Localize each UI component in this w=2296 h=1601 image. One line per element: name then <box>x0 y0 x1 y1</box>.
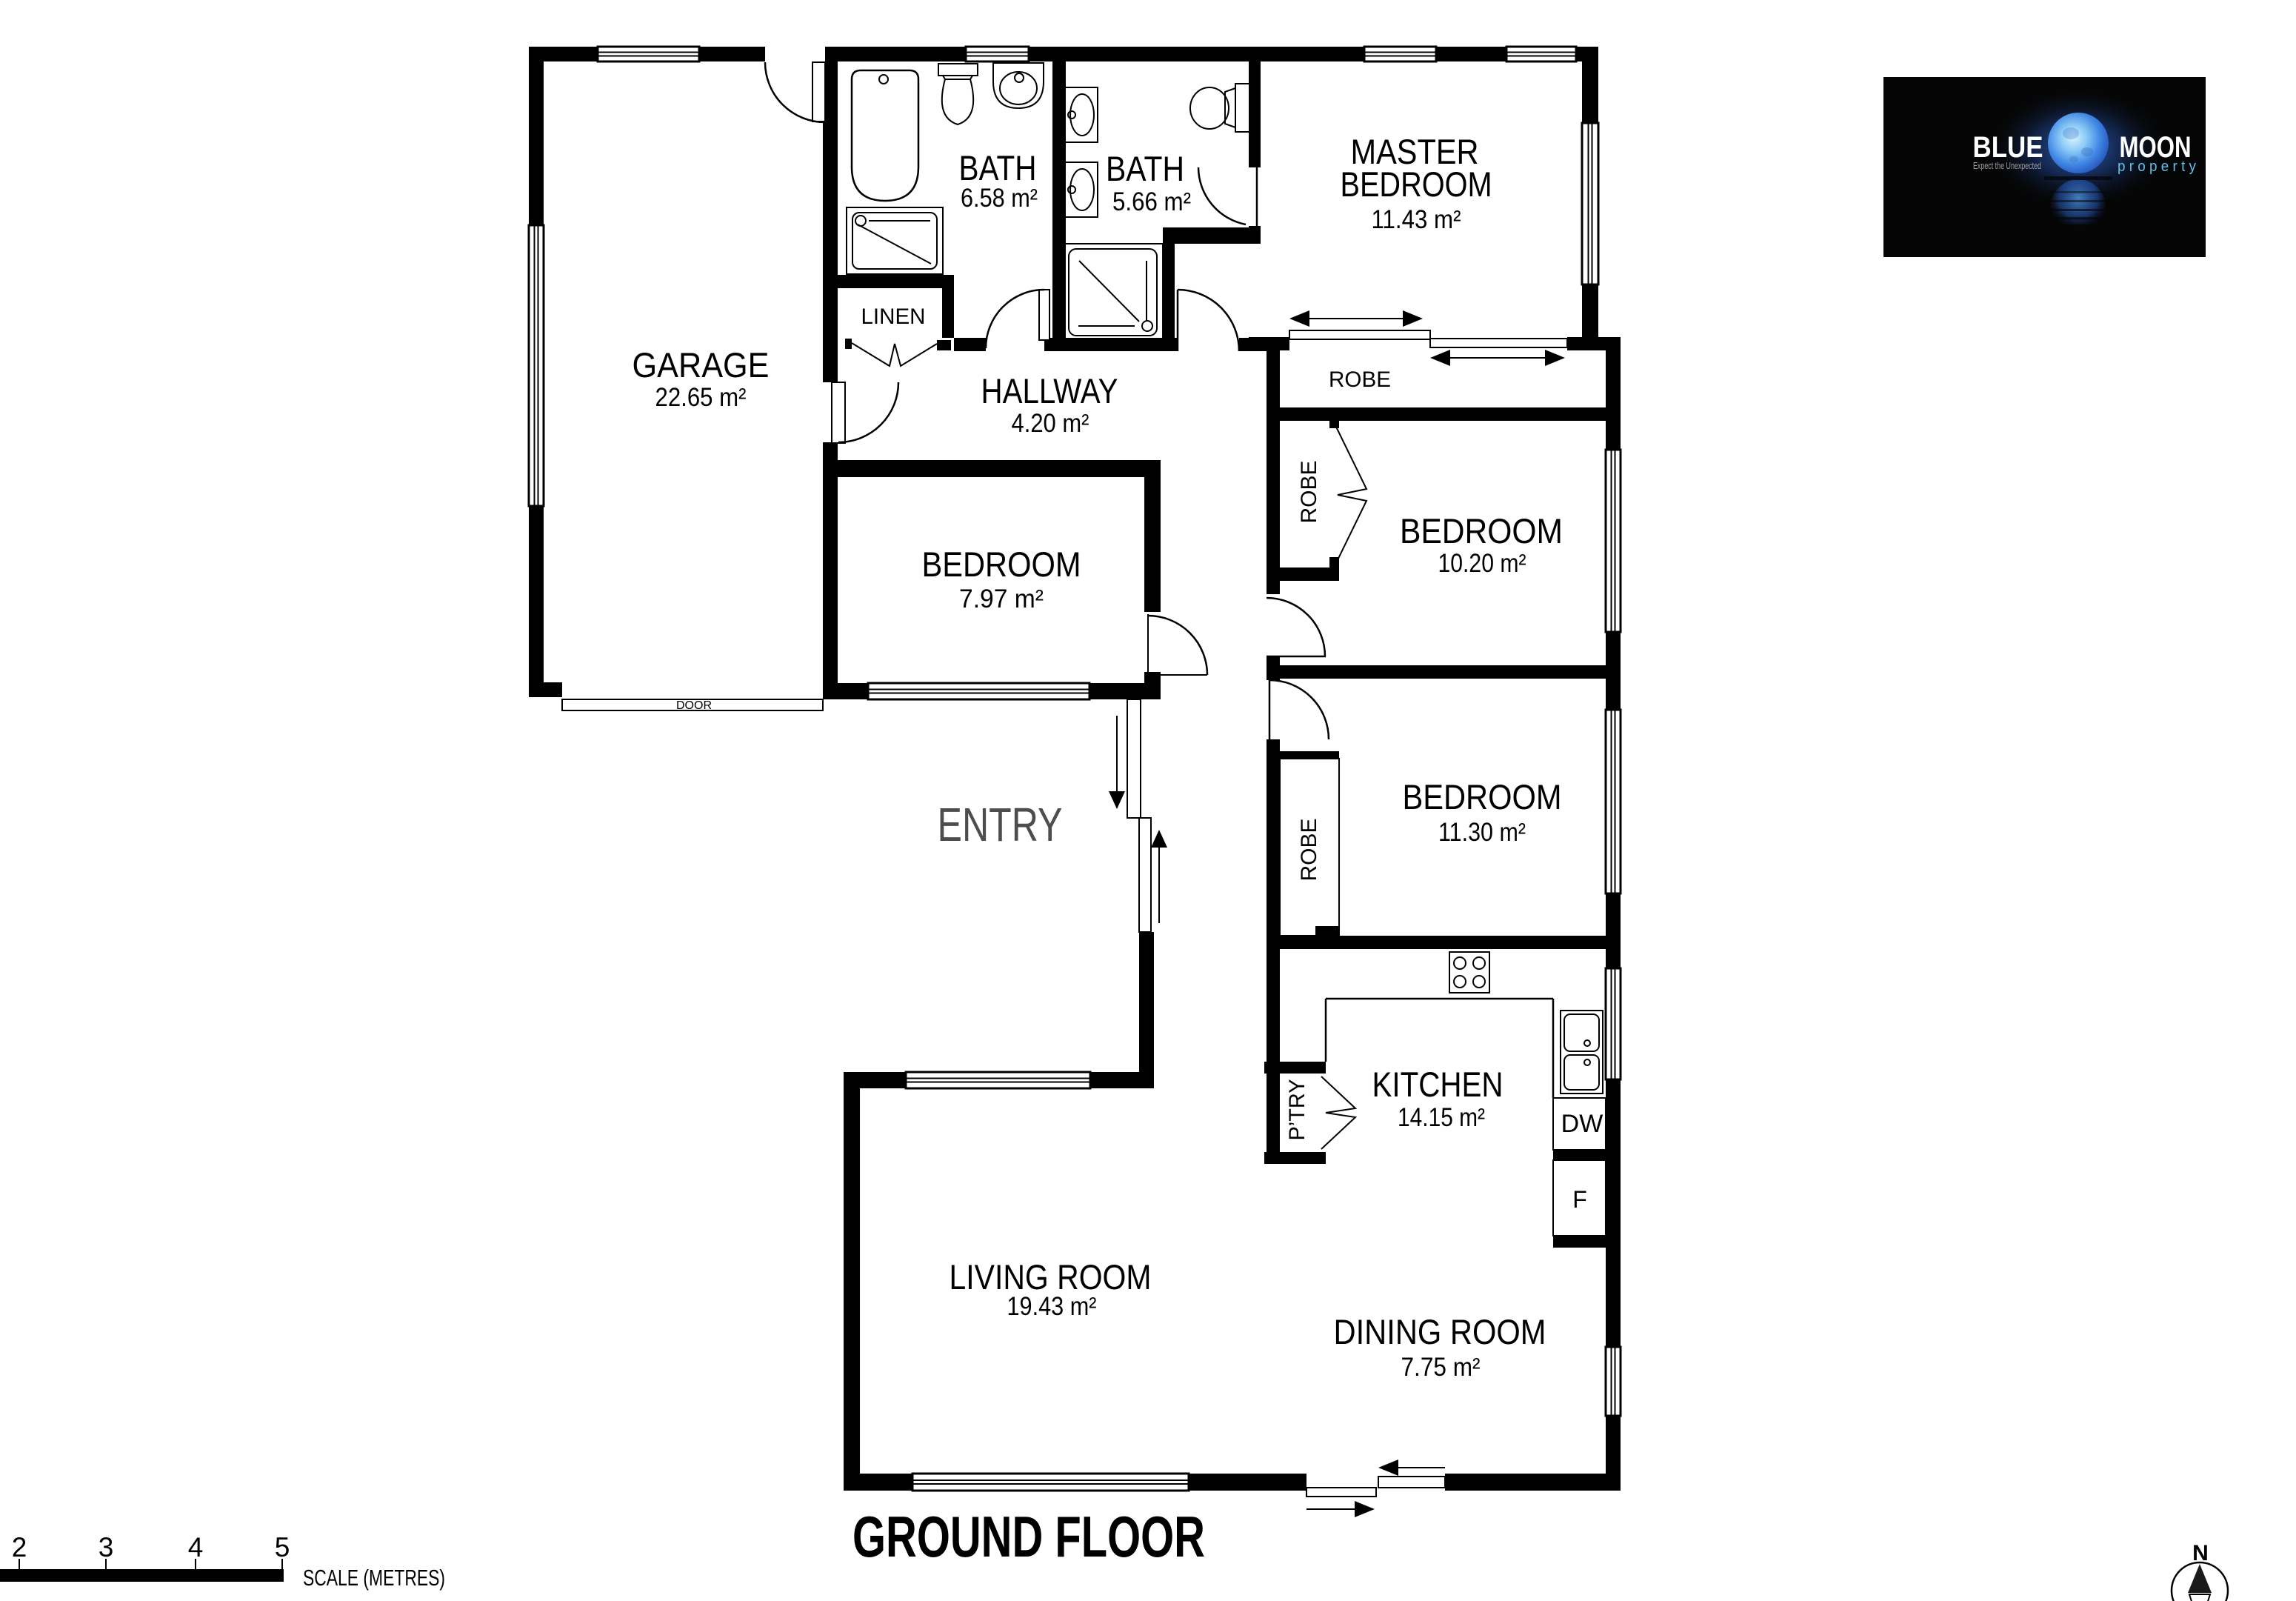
svg-text:7.97 m²: 7.97 m² <box>959 585 1044 613</box>
svg-text:GARAGE: GARAGE <box>633 345 770 385</box>
svg-text:10.20 m²: 10.20 m² <box>1438 549 1526 578</box>
svg-text:DINING ROOM: DINING ROOM <box>1334 1312 1546 1351</box>
svg-text:BEDROOM: BEDROOM <box>922 545 1081 584</box>
svg-text:GROUND FLOOR: GROUND FLOOR <box>852 1504 1205 1569</box>
svg-text:LINEN: LINEN <box>861 304 926 329</box>
svg-text:ROBE: ROBE <box>1329 367 1391 392</box>
svg-text:DOOR: DOOR <box>676 699 712 712</box>
svg-text:BATH: BATH <box>959 148 1037 187</box>
svg-text:DW: DW <box>1561 1110 1603 1138</box>
svg-text:4: 4 <box>188 1532 204 1562</box>
svg-text:ENTRY: ENTRY <box>938 798 1063 851</box>
svg-text:BEDROOM: BEDROOM <box>1341 164 1492 204</box>
svg-text:BEDROOM: BEDROOM <box>1403 777 1562 816</box>
svg-text:5.66 m²: 5.66 m² <box>1112 187 1191 216</box>
svg-text:2: 2 <box>12 1532 27 1562</box>
svg-text:3: 3 <box>99 1532 114 1562</box>
svg-text:14.15 m²: 14.15 m² <box>1398 1103 1485 1132</box>
svg-text:BLUE: BLUE <box>1973 131 2043 164</box>
svg-text:HALLWAY: HALLWAY <box>981 371 1118 410</box>
svg-text:5: 5 <box>275 1532 290 1562</box>
svg-text:BATH: BATH <box>1106 149 1184 188</box>
svg-text:p r o p e r t y: p r o p e r t y <box>2118 159 2196 175</box>
svg-text:ROBE: ROBE <box>1297 819 1321 882</box>
svg-text:7.75 m²: 7.75 m² <box>1401 1353 1481 1382</box>
svg-text:11.30 m²: 11.30 m² <box>1438 818 1526 847</box>
svg-text:22.65 m²: 22.65 m² <box>655 383 747 412</box>
svg-text:F: F <box>1572 1186 1587 1213</box>
svg-text:19.43 m²: 19.43 m² <box>1007 1292 1097 1321</box>
svg-text:11.43 m²: 11.43 m² <box>1372 205 1461 234</box>
svg-text:SCALE (METRES): SCALE (METRES) <box>303 1565 445 1591</box>
svg-text:Expect the Unexpected: Expect the Unexpected <box>1973 160 2041 171</box>
svg-text:P’TRY: P’TRY <box>1285 1079 1309 1141</box>
svg-text:6.58 m²: 6.58 m² <box>961 184 1038 213</box>
svg-text:LIVING ROOM: LIVING ROOM <box>950 1257 1152 1297</box>
svg-text:BEDROOM: BEDROOM <box>1400 511 1563 550</box>
svg-text:ROBE: ROBE <box>1297 461 1321 524</box>
svg-text:4.20 m²: 4.20 m² <box>1012 409 1089 438</box>
svg-text:KITCHEN: KITCHEN <box>1372 1065 1504 1104</box>
